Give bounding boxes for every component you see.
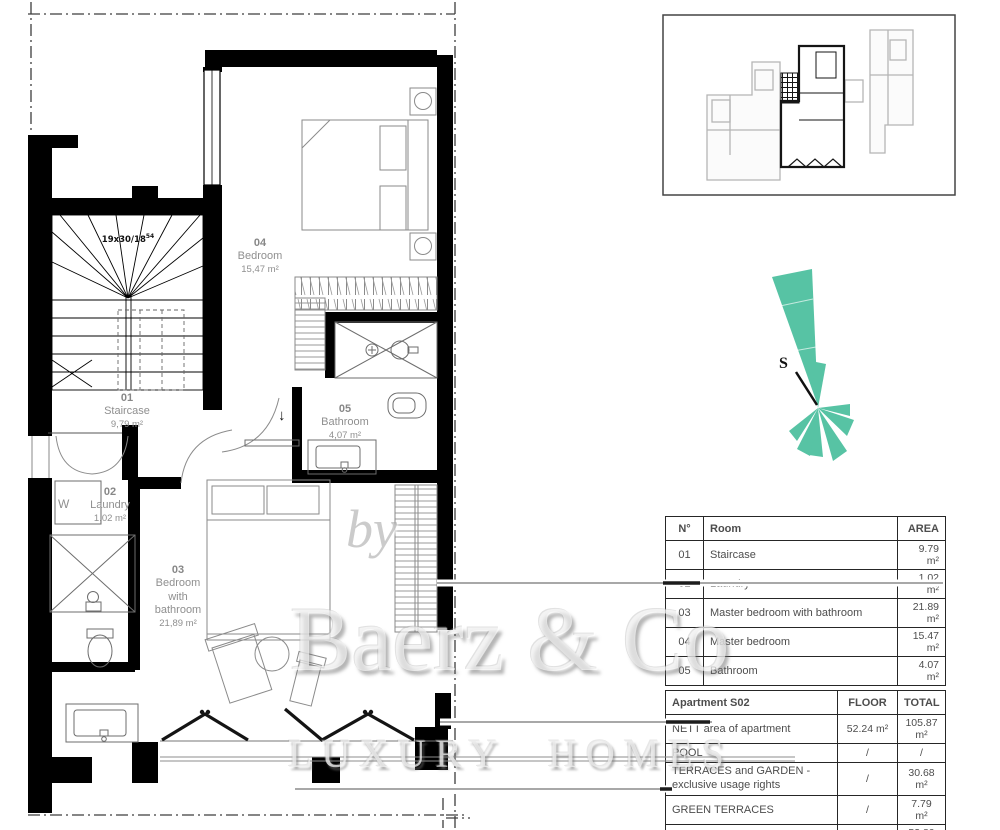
floor-plan-page: S 01 Staircase 9,79 m² 02 Laundry 1,02 m… <box>0 0 1000 830</box>
col-header-no: N° <box>666 517 704 541</box>
table-row: TERRACES and GARDEN - exclusive usage ri… <box>666 763 946 796</box>
room-label-bedroom-with-bathroom: 03 Bedroom with bathroom 21,89 m² <box>148 564 208 629</box>
col-header-floor: FLOOR <box>838 691 898 715</box>
room-label-staircase: 01 Staircase 9,79 m² <box>85 392 169 430</box>
terrace-bifold-doors <box>160 709 453 741</box>
apartment-title: Apartment S02 <box>666 691 838 715</box>
room-label-bedroom: 04 Bedroom 15,47 m² <box>218 237 302 275</box>
room-label-laundry: 02 Laundry 1,02 m² <box>70 486 150 524</box>
table-row: NETT area of apartment 52.24 m² 105.87 m… <box>666 715 946 744</box>
col-header-total: TOTAL <box>898 691 946 715</box>
table-row: POOL / / <box>666 744 946 763</box>
washer-symbol: W <box>58 497 69 511</box>
table-row: 02 Laundry 1.02 m² <box>666 570 946 599</box>
table-row: 04 Master bedroom 15.47 m² <box>666 628 946 657</box>
bedroom04-furniture <box>295 88 437 370</box>
table-row: GREEN TERRACES / 7.79 m² <box>666 795 946 824</box>
key-plan <box>663 15 955 195</box>
col-header-area: AREA <box>898 517 946 541</box>
entry-arrow-icon: ↓ <box>278 407 286 424</box>
room-label-bathroom: 05 Bathroom 4,07 m² <box>303 403 387 441</box>
apartment-table-header-row: Apartment S02 FLOOR TOTAL <box>666 691 946 715</box>
table-row: 03 Master bedroom with bathroom 21.89 m² <box>666 599 946 628</box>
bedroom03-furniture <box>205 480 437 707</box>
apartment-summary-table: Apartment S02 FLOOR TOTAL NETT area of a… <box>665 690 946 830</box>
compass-rose-icon: S <box>772 269 854 461</box>
compass-south-label: S <box>779 355 788 372</box>
stair-dimension-note: 19x30/1854 <box>96 233 160 245</box>
table-row: 01 Staircase 9.79 m² <box>666 541 946 570</box>
bathroom05-fixtures <box>245 322 437 474</box>
walls <box>28 50 453 813</box>
col-header-room: Room <box>704 517 898 541</box>
room-area-table: N° Room AREA 01 Staircase 9.79 m² 02 Lau… <box>665 516 946 686</box>
table-row: GARAGE - basement / 53.80 m² <box>666 824 946 830</box>
room-table-header-row: N° Room AREA <box>666 517 946 541</box>
table-row: 05 Bathroom 4.07 m² <box>666 657 946 686</box>
